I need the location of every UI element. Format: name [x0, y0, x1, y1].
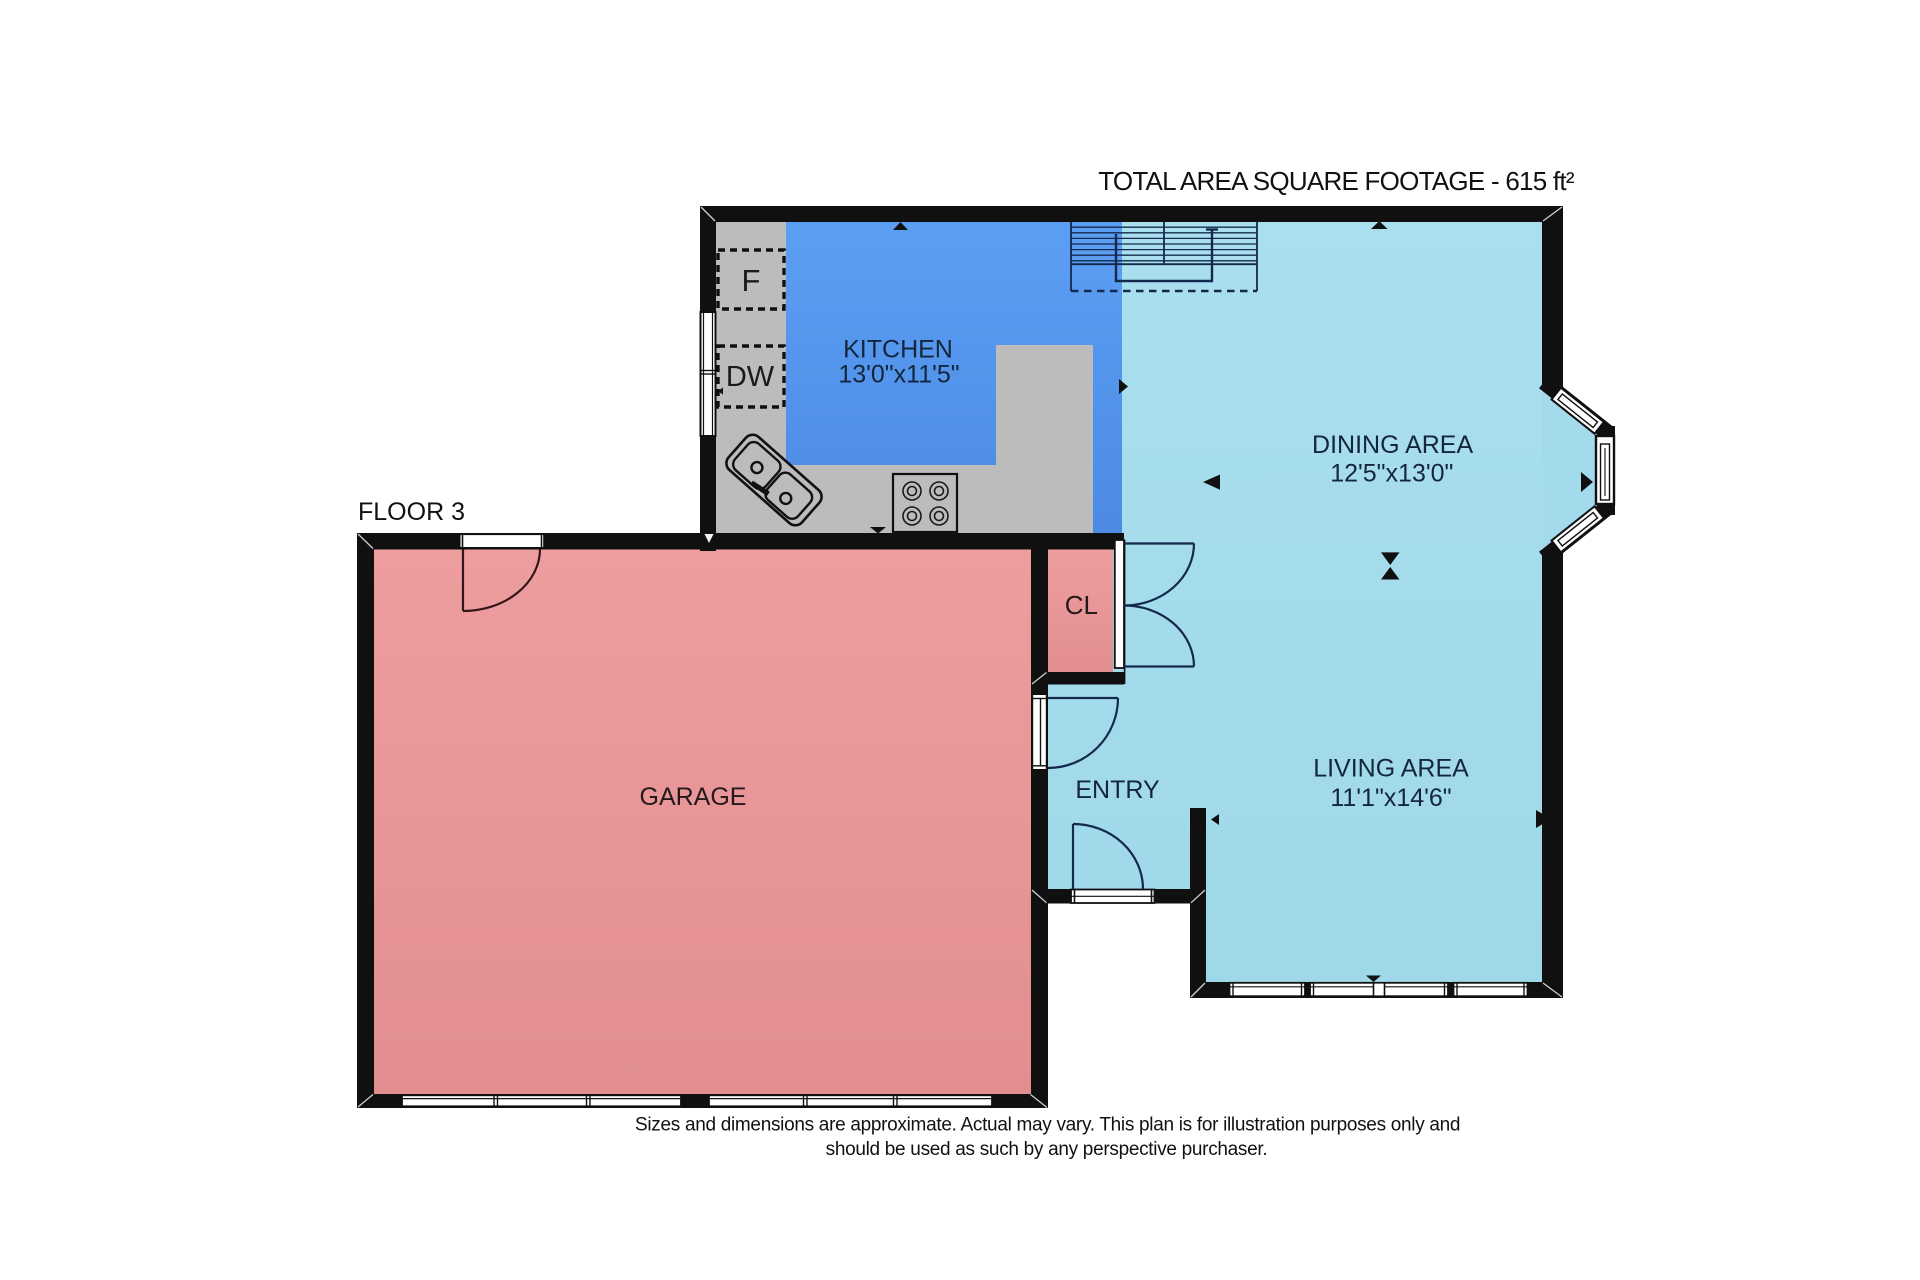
svg-text:Sizes and dimensions are appro: Sizes and dimensions are approximate. Ac… — [635, 1115, 1460, 1136]
svg-text:LIVING AREA: LIVING AREA — [1313, 755, 1469, 783]
svg-text:should be used as such by any: should be used as such by any perspectiv… — [826, 1139, 1268, 1160]
svg-text:GARAGE: GARAGE — [640, 783, 747, 811]
svg-text:13'0"x11'5": 13'0"x11'5" — [838, 361, 959, 389]
svg-text:11'1"x14'6": 11'1"x14'6" — [1330, 784, 1451, 812]
svg-text:CL: CL — [1065, 590, 1098, 620]
svg-text:12'5"x13'0": 12'5"x13'0" — [1330, 460, 1453, 488]
svg-text:DINING AREA: DINING AREA — [1312, 431, 1473, 459]
svg-text:TOTAL AREA SQUARE FOOTAGE - 61: TOTAL AREA SQUARE FOOTAGE - 615 ft² — [1098, 166, 1575, 196]
svg-text:FLOOR 3: FLOOR 3 — [358, 498, 465, 526]
svg-text:DW: DW — [726, 361, 775, 393]
svg-text:F: F — [742, 263, 761, 298]
svg-text:ENTRY: ENTRY — [1075, 776, 1160, 804]
svg-text:KITCHEN: KITCHEN — [843, 336, 953, 364]
